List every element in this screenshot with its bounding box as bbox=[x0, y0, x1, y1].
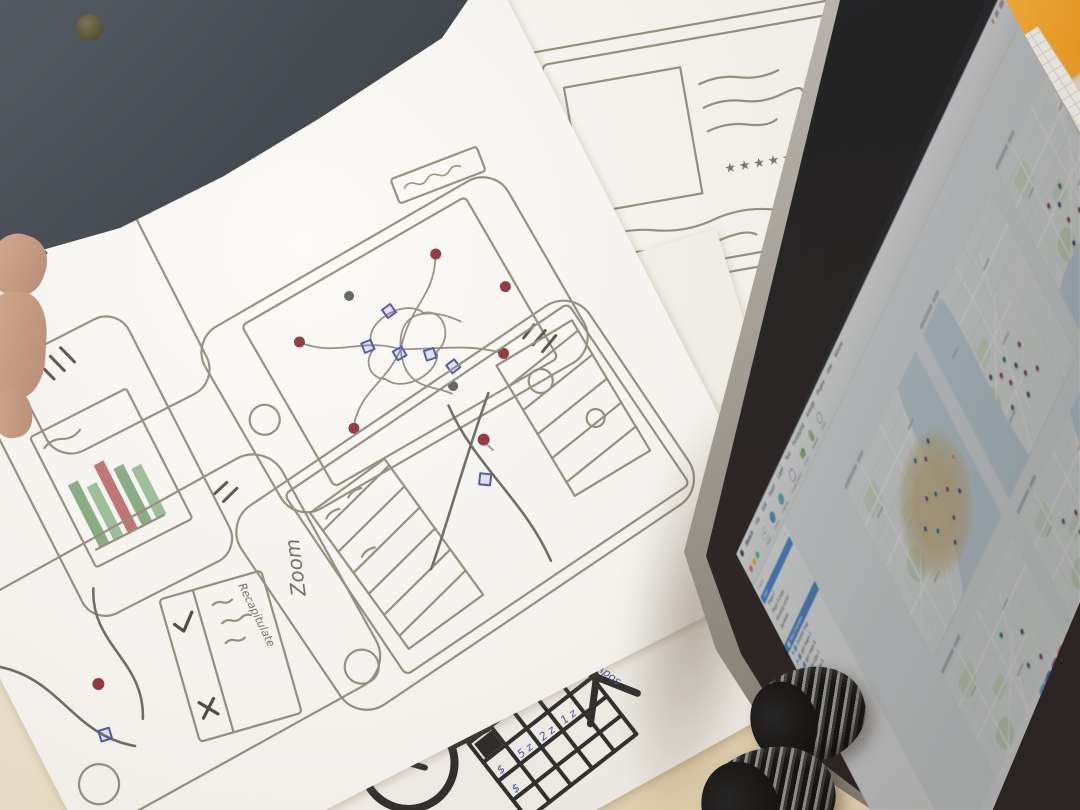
layer-checkbox[interactable] bbox=[792, 650, 795, 656]
toolbar-union-button[interactable]: Union bbox=[799, 445, 810, 467]
phone-sketch-dialog: Recapitulate bbox=[0, 442, 392, 810]
add-page-button[interactable]: + bbox=[783, 530, 787, 539]
dialog-sketch: Recapitulate bbox=[159, 570, 302, 741]
svg-text:2 z: 2 z bbox=[537, 723, 558, 743]
status-icon-1[interactable] bbox=[994, 9, 999, 19]
cross-sketch bbox=[199, 699, 218, 719]
window-controls bbox=[748, 550, 759, 573]
svg-text:1 z: 1 z bbox=[558, 706, 579, 726]
layer-checkbox[interactable] bbox=[796, 658, 799, 664]
handwritten-zoom: Zoom bbox=[280, 538, 311, 599]
toolbar-insert-button[interactable]: +Insert bbox=[761, 525, 772, 547]
apple-logo-icon[interactable] bbox=[740, 548, 745, 557]
recording-indicator-icon bbox=[991, 18, 995, 25]
zoom-window-button[interactable] bbox=[755, 550, 760, 560]
toolbar-subtract-button[interactable]: Subtract bbox=[806, 425, 819, 450]
toolbar-zoom-button[interactable]: Zoom bbox=[815, 409, 826, 431]
labeled-button-sketch bbox=[390, 146, 485, 203]
toolbar-ungroup-button[interactable]: Ungroup bbox=[776, 489, 789, 515]
svg-text:5 z: 5 z bbox=[515, 740, 536, 760]
toolbar-group-button[interactable]: Group bbox=[768, 509, 779, 531]
hatched-list-right bbox=[496, 320, 650, 496]
checkmark-sketch bbox=[173, 612, 197, 633]
minimize-window-button[interactable] bbox=[752, 557, 757, 567]
phone-sketch-network bbox=[170, 131, 598, 523]
close-window-button[interactable] bbox=[748, 564, 753, 574]
photo-scene: ★★★★★ kela valiké b. LiVé (PK bbox=[0, 0, 1080, 810]
jacket-button bbox=[76, 14, 103, 41]
